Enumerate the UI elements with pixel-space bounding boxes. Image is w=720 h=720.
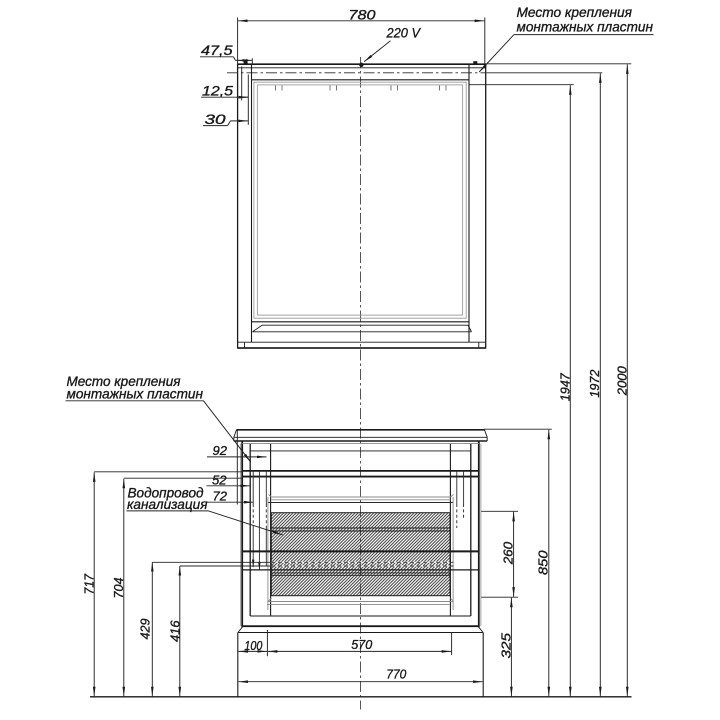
- svg-text:92: 92: [213, 443, 228, 458]
- svg-text:770: 770: [386, 667, 407, 682]
- svg-text:570: 570: [351, 637, 373, 652]
- svg-text:2000: 2000: [615, 365, 630, 396]
- svg-text:220 V: 220 V: [386, 25, 422, 41]
- svg-text:1972: 1972: [587, 369, 602, 398]
- svg-text:850: 850: [536, 550, 551, 575]
- svg-text:416: 416: [167, 620, 182, 642]
- svg-text:52: 52: [212, 473, 227, 488]
- svg-text:монтажных пластин: монтажных пластин: [67, 385, 204, 401]
- svg-text:канализация: канализация: [127, 496, 208, 512]
- svg-text:1947: 1947: [558, 373, 573, 402]
- svg-text:704: 704: [111, 578, 126, 599]
- svg-text:12,5: 12,5: [202, 84, 234, 99]
- svg-text:30: 30: [205, 112, 227, 127]
- svg-text:72: 72: [213, 488, 228, 503]
- svg-text:47,5: 47,5: [201, 43, 233, 58]
- svg-text:325: 325: [498, 632, 513, 658]
- svg-text:717: 717: [81, 573, 96, 594]
- svg-text:100: 100: [244, 638, 263, 653]
- svg-text:429: 429: [138, 619, 153, 640]
- svg-text:монтажных пластин: монтажных пластин: [517, 18, 654, 34]
- svg-text:780: 780: [349, 6, 376, 22]
- svg-text:260: 260: [500, 541, 515, 565]
